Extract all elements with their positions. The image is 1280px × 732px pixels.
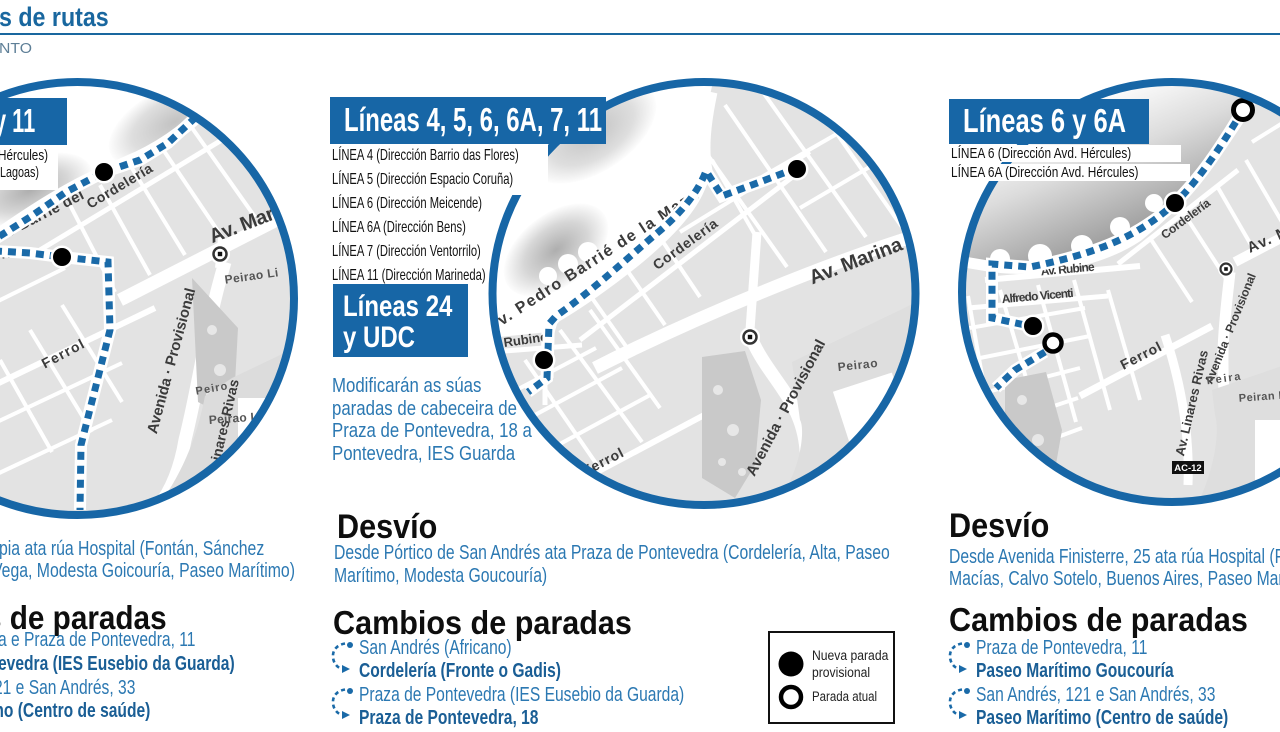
svg-text:AC-12: AC-12 xyxy=(1174,463,1201,474)
